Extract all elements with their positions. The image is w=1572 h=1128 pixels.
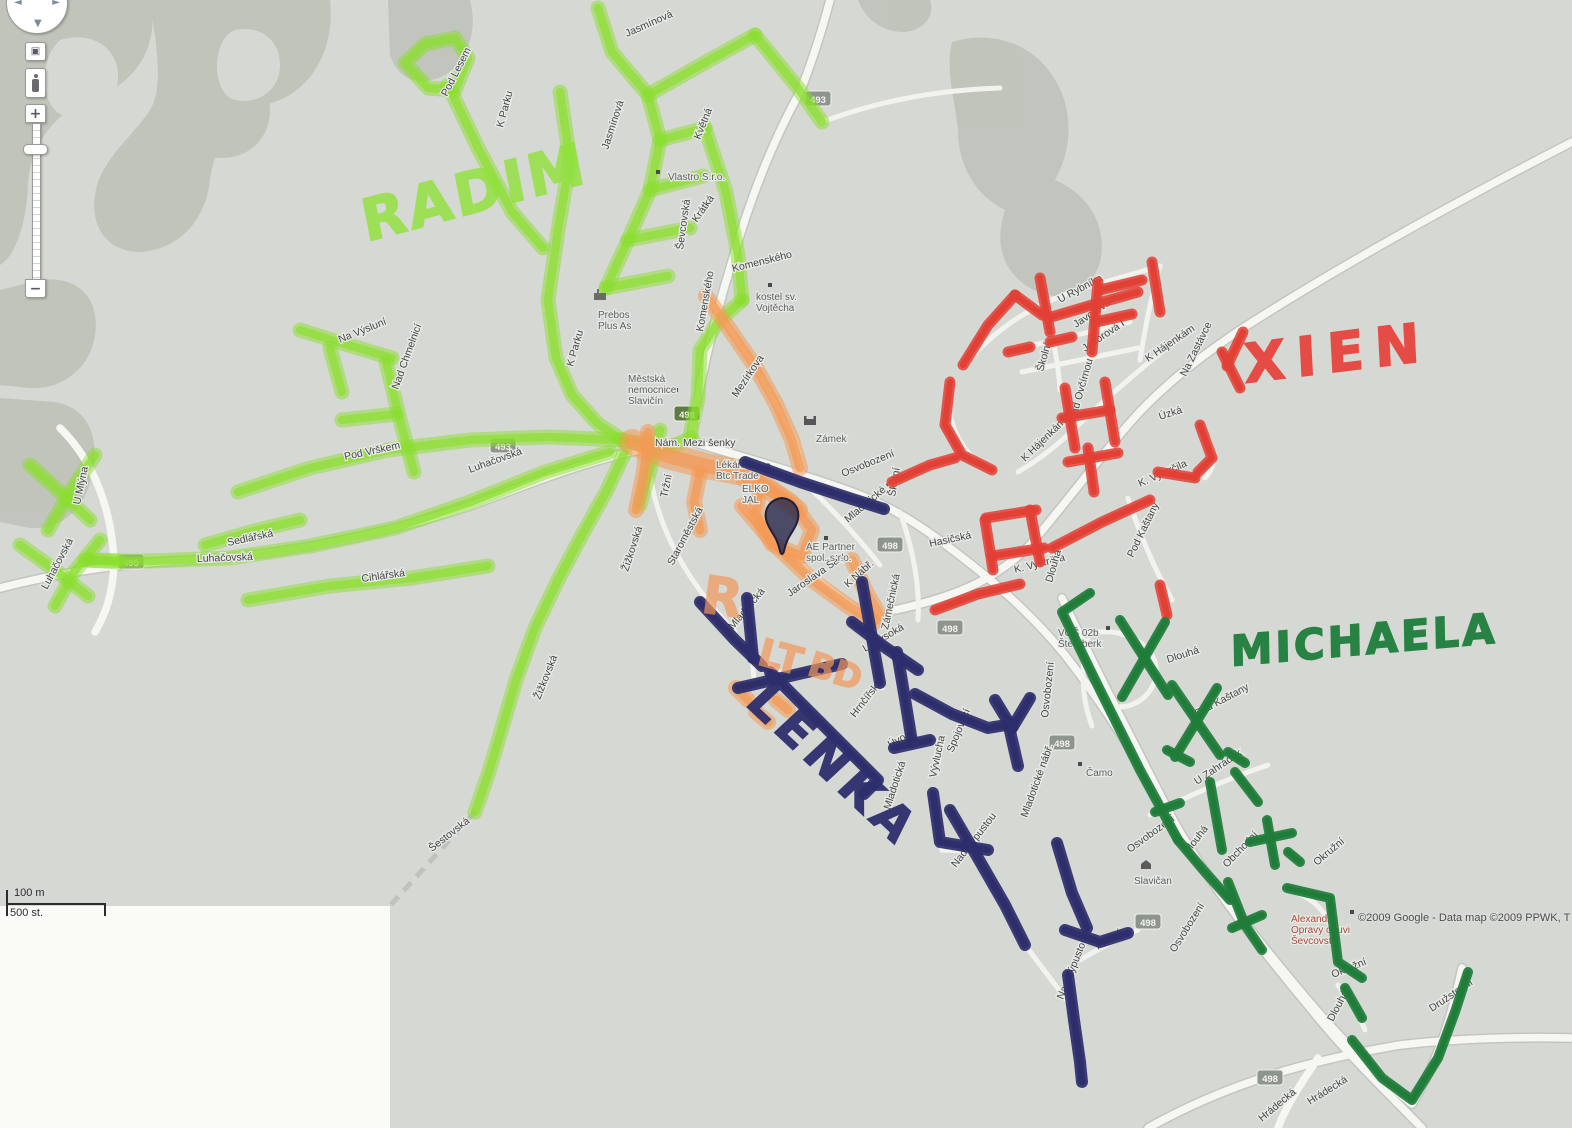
route-shield-label: 498	[1140, 918, 1156, 929]
scale-bar: 100 m 500 st.	[6, 884, 114, 924]
poi-label: Slavičín	[628, 396, 663, 407]
marker-scribble: BD	[803, 645, 867, 700]
poi: kostel sv.Vojtěcha	[756, 283, 797, 314]
zoom-out-button[interactable]: −	[25, 279, 46, 298]
street-label: Žižkovská	[618, 524, 645, 573]
poi-dot-icon	[1106, 626, 1110, 630]
zoom-slider-handle[interactable]	[23, 144, 48, 155]
marker-green-stroke	[330, 348, 342, 392]
street-label: K Parku	[494, 89, 515, 128]
street-label: Dlouhá	[1165, 644, 1201, 666]
street-label: Tržní	[658, 473, 675, 499]
street-label: Nám. Mezi šenky	[655, 437, 736, 449]
route-shield: 498	[937, 620, 963, 635]
scale-line	[6, 903, 106, 905]
poi-label: Prebos	[598, 310, 630, 321]
poi-label: nemocnice	[628, 385, 677, 396]
pegman-icon	[32, 74, 39, 92]
street-label: Úzká	[1157, 403, 1184, 423]
street-label: Na Výsluní	[337, 316, 389, 346]
poi-dot-icon	[824, 536, 828, 540]
poi: MěstskánemocniceSlavičín	[628, 374, 678, 407]
poi: Čamo	[1078, 762, 1113, 779]
route-shield-label: 498	[942, 624, 958, 635]
marker-scribble: R	[698, 565, 746, 630]
poi-label: Vojtěcha	[756, 303, 795, 314]
route-shield: 498	[1135, 914, 1161, 929]
street-label: Osvobození	[1039, 661, 1057, 718]
poi-label: Plus As	[598, 321, 631, 332]
poi: PrebosPlus As	[594, 289, 631, 332]
poi-dot-icon	[656, 170, 660, 174]
route-shield-label: 498	[882, 541, 898, 552]
poi-label: spol. s r.o.	[806, 553, 852, 564]
street-label: Osvobození	[840, 448, 897, 480]
scanned-map-page: 493493498495498498498498498JasmínováJasm…	[0, 0, 1572, 1128]
route-shield-label: 498	[1262, 1074, 1278, 1085]
street-label: Jasmínová	[623, 8, 674, 40]
marker-green-stroke	[85, 452, 610, 561]
street-label: K Parku	[564, 328, 586, 367]
street-label: Mladotické nábř.	[1019, 743, 1057, 820]
poi-dot-icon	[768, 283, 772, 287]
house-icon	[1141, 860, 1151, 869]
poi-label: Alexandr	[1291, 914, 1331, 925]
poi-label: kostel sv.	[756, 292, 797, 303]
poi-label: AE Partner	[806, 542, 856, 553]
route-shield: 498	[1257, 1070, 1283, 1085]
marker-green-stroke	[648, 35, 755, 95]
route-shield: 498	[877, 537, 903, 552]
street-label: Krátká	[690, 193, 717, 225]
poi-label: Slavičan	[1134, 876, 1172, 887]
marker-navy-stroke	[1057, 843, 1087, 928]
castle-icon	[804, 416, 816, 425]
marker-name-xien: XIEN	[1242, 310, 1432, 396]
poi-dot-icon	[1078, 762, 1082, 766]
street-label: Šestovská	[426, 814, 472, 854]
pan-left-icon[interactable]: ◄	[14, 0, 22, 8]
pegman-streetview-control[interactable]	[25, 68, 46, 98]
poi: Zámek	[804, 416, 848, 445]
marker-darkgreen-stroke	[1288, 852, 1300, 862]
poi-label: Opravy obuvi	[1291, 925, 1350, 936]
street-label: Žižkovská	[531, 653, 561, 701]
route-shield-label: 498	[1054, 739, 1070, 750]
pan-down-icon[interactable]: ▼	[34, 18, 42, 29]
pan-right-icon[interactable]: ►	[52, 0, 60, 8]
poi-dot-icon	[1350, 910, 1354, 914]
street-label: Okružní	[1311, 835, 1347, 868]
poi-label: Městská	[628, 374, 666, 385]
zoom-in-button[interactable]: +	[25, 104, 46, 123]
scale-imperial-label: 500 st.	[10, 907, 43, 919]
scale-metric-label: 100 m	[14, 887, 45, 899]
marker-green-stroke	[88, 560, 120, 562]
overview-button[interactable]: ▣	[25, 42, 46, 61]
street-label: Luhačovská	[197, 551, 254, 565]
marker-red-stroke	[985, 520, 993, 570]
poi-label: Vlastro S.r.o.	[668, 172, 725, 183]
scale-tick	[104, 903, 106, 916]
map-canvas[interactable]: 493493498495498498498498498JasmínováJasm…	[0, 0, 1572, 1128]
poi-label: Zámek	[816, 434, 848, 445]
marker-name-michaela: MICHAELA	[1230, 604, 1498, 676]
poi: Slavičan	[1134, 860, 1172, 887]
poi-label: Btc Trade	[716, 471, 759, 482]
poi-label: Čamo	[1086, 766, 1113, 779]
poi-label: ELKO	[742, 484, 769, 495]
poi: AlexandrOpravy obuviŠevcovství	[1291, 910, 1354, 947]
map-attribution: ©2009 Google - Data map ©2009 PPWK, T	[1358, 912, 1570, 924]
paper-margin	[0, 906, 390, 1128]
marker-darkgreen-stroke	[1235, 772, 1258, 802]
street-label: Osvobození	[1167, 901, 1207, 955]
street-label: Hrádecká	[1305, 1073, 1350, 1107]
poi-label: JAL	[742, 495, 760, 506]
street-label: Jasmínová	[599, 99, 626, 151]
